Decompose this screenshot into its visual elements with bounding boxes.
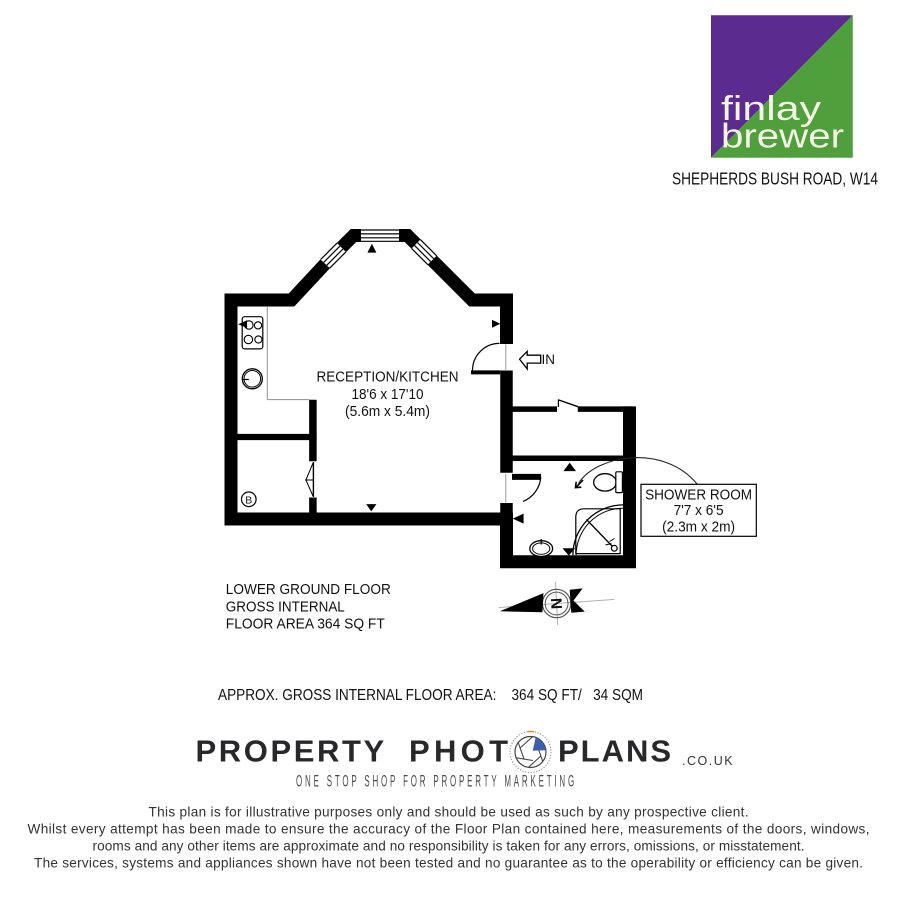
svg-text:PHOT: PHOT [409, 734, 512, 769]
svg-text:IN: IN [542, 352, 556, 367]
svg-text:.CO.UK: .CO.UK [682, 754, 734, 768]
svg-text:brewer: brewer [721, 118, 844, 156]
svg-text:RECEPTION/KITCHEN: RECEPTION/KITCHEN [317, 369, 459, 386]
svg-text:SHEPHERDS BUSH ROAD, W14: SHEPHERDS BUSH ROAD, W14 [672, 168, 878, 188]
svg-text:Whilst every attempt has been: Whilst every attempt has been made to en… [28, 821, 870, 836]
svg-text:ONE STOP SHOP FOR PROPERTY MAR: ONE STOP SHOP FOR PROPERTY MARKETING [296, 772, 577, 791]
svg-text:APPROX. GROSS INTERNAL FLOOR A: APPROX. GROSS INTERNAL FLOOR AREA: 364 S… [218, 687, 643, 704]
svg-text:B: B [245, 494, 252, 506]
svg-text:N: N [547, 598, 565, 610]
svg-text:FLOOR AREA 364 SQ FT: FLOOR AREA 364 SQ FT [226, 616, 385, 633]
svg-text:(2.3m x 2m): (2.3m x 2m) [662, 518, 735, 535]
svg-text:This plan is for illustrative: This plan is for illustrative purposes o… [149, 804, 749, 819]
svg-text:PLANS: PLANS [558, 734, 673, 769]
svg-text:The services, systems and appl: The services, systems and appliances sho… [34, 855, 863, 870]
svg-text:GROSS INTERNAL: GROSS INTERNAL [226, 598, 345, 615]
svg-text:LOWER GROUND FLOOR: LOWER GROUND FLOOR [226, 581, 391, 598]
svg-text:(5.6m x 5.4m): (5.6m x 5.4m) [345, 403, 430, 420]
svg-text:7'7 x 6'5: 7'7 x 6'5 [674, 502, 724, 519]
svg-text:18'6 x 17'10: 18'6 x 17'10 [352, 386, 424, 403]
svg-text:rooms and any other items are: rooms and any other items are approximat… [93, 838, 805, 853]
svg-text:PROPERTY: PROPERTY [196, 734, 387, 769]
